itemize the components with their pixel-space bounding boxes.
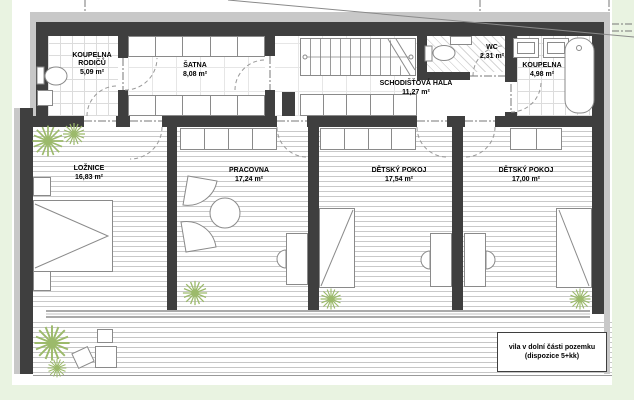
room-label-hala: SCHODIŠŤOVÁ HALA11,27 m² bbox=[356, 80, 476, 97]
wardrobe-detsky2 bbox=[510, 128, 562, 150]
outer-band-right bbox=[604, 22, 610, 374]
room-label-detsky2: DĚTSKÝ POKOJ17,00 m² bbox=[476, 167, 576, 184]
wall-loznice-pracovna bbox=[167, 127, 177, 310]
wall-wc-bottom bbox=[424, 72, 472, 80]
wall-top bbox=[44, 22, 604, 36]
outer-band-top bbox=[30, 12, 610, 22]
room-label-loznice: LOŽNICE16,83 m² bbox=[49, 165, 129, 182]
room-label-detsky1: DĚTSKÝ POKOJ17,54 m² bbox=[349, 167, 449, 184]
wall-pracovna-detsky1 bbox=[308, 127, 319, 310]
wardrobe-satna-bottom bbox=[128, 95, 265, 116]
door-gap-pracovna bbox=[277, 116, 307, 127]
door-gap-detsky1 bbox=[417, 116, 447, 127]
desk-detsky2 bbox=[464, 233, 486, 287]
door-gap-koupelna-rodicu bbox=[84, 116, 116, 127]
door-gap-wc bbox=[470, 72, 505, 80]
floor-plan: KOUPELNA RODIČŮ5,09 m² ŠATNA8,08 m² SCHO… bbox=[0, 0, 634, 400]
room-label-koupelna: KOUPELNA4,98 m² bbox=[502, 62, 582, 79]
wall-detsky1-detsky2 bbox=[452, 127, 463, 310]
door-gap-detsky2 bbox=[465, 116, 495, 127]
note-line2: (dispozice 5+kk) bbox=[498, 352, 606, 361]
room-label-koupelna-rodicu: KOUPELNA RODIČŮ5,09 m² bbox=[52, 52, 132, 77]
nightstand bbox=[33, 271, 51, 291]
wardrobe-pracovna bbox=[180, 128, 277, 150]
door-gap-loznice bbox=[130, 116, 162, 127]
wall-shaft-stub bbox=[282, 92, 295, 116]
window-band bbox=[33, 310, 592, 318]
room-label-satna: ŠATNA8,08 m² bbox=[155, 62, 235, 79]
room-label-pracovna: PRACOVNA17,24 m² bbox=[209, 167, 289, 184]
bed-loznice bbox=[33, 200, 113, 272]
wardrobe-detsky1 bbox=[320, 128, 416, 150]
bed-detsky2 bbox=[556, 208, 592, 288]
stairs bbox=[300, 38, 416, 76]
terrace-chair bbox=[97, 329, 113, 343]
note-line1: vila v dolní části pozemku bbox=[498, 343, 606, 352]
bed-detsky1 bbox=[319, 208, 355, 288]
wall-left-lower bbox=[20, 108, 33, 374]
wall-right bbox=[592, 22, 604, 314]
door-gap-satna-right bbox=[265, 56, 275, 90]
terrace-table bbox=[95, 346, 117, 368]
door-gap-koupelna bbox=[505, 82, 517, 112]
wardrobe-satna-top bbox=[128, 36, 265, 57]
closet-hala bbox=[300, 94, 417, 116]
room-label-wc: WC2,31 m² bbox=[462, 44, 522, 61]
washbasin-icon bbox=[37, 90, 53, 106]
washbasin-icon bbox=[543, 38, 569, 58]
desk-detsky1 bbox=[430, 233, 452, 287]
note-box: vila v dolní části pozemku (dispozice 5+… bbox=[497, 332, 607, 372]
desk-pracovna bbox=[286, 233, 308, 285]
